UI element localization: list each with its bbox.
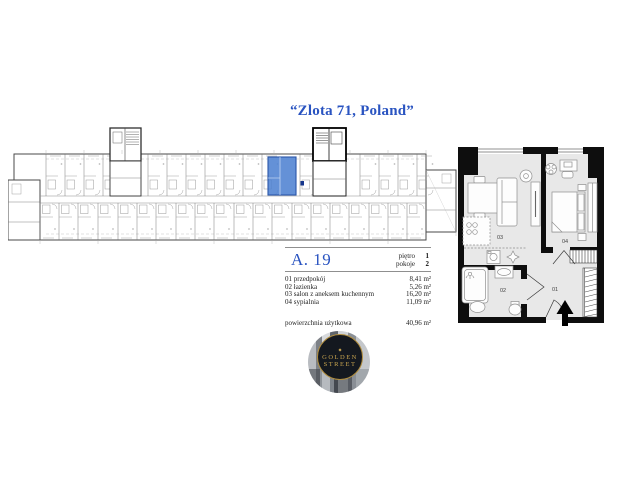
floor-value: 1 [422,252,429,260]
hall-wardrobe [570,250,597,263]
rooms-label: pokoje [396,260,415,268]
logo-line1: GOLDEN [322,354,358,361]
floor-rooms-table: piętro1 pokoje2 [396,252,429,268]
room-label-bath: 02 [500,288,506,294]
total-area-label: powierzchnia użytkowa [285,319,352,327]
floor-label: piętro [399,252,415,260]
unit-info-panel: A. 19 piętro1 pokoje2 01 przedpokój 8,41… [285,247,431,327]
total-area-row: powierzchnia użytkowa 40,96 m² [285,319,431,327]
apartment-detail-plan: 03 04 02 01 [458,147,604,327]
developer-logo[interactable]: ◆ GOLDEN STREET [308,331,370,393]
room-label-bedroom: 04 [562,239,568,245]
divider-mid [285,271,431,272]
stair-tower-left [110,128,141,196]
unit-marker-dot [301,181,305,186]
floorplan-page: “Zlota 71, Poland” A. 19 piętro1 pokoje2… [0,0,640,480]
total-area-value: 40,96 m² [406,319,431,327]
room-label-living: 03 [497,235,503,241]
room-list: 01 przedpokój 8,41 m² 02 łazienka 5,26 m… [285,276,431,306]
unit-code: A. 19 [291,250,331,270]
stair-tower-right [313,128,346,196]
building-overview-plan [8,126,458,244]
highlighted-unit[interactable] [268,157,296,195]
logo-diamond-icon: ◆ [338,347,341,352]
room-label-hall: 01 [552,287,558,293]
shaft-hatch [583,268,597,317]
project-title: “Zlota 71, Poland” [262,103,442,120]
room-row-4: 04 sypialnia 11,09 m² [285,299,431,307]
logo-line2: STREET [324,361,357,368]
rooms-value: 2 [422,260,429,268]
logo-disc: ◆ GOLDEN STREET [317,334,363,380]
